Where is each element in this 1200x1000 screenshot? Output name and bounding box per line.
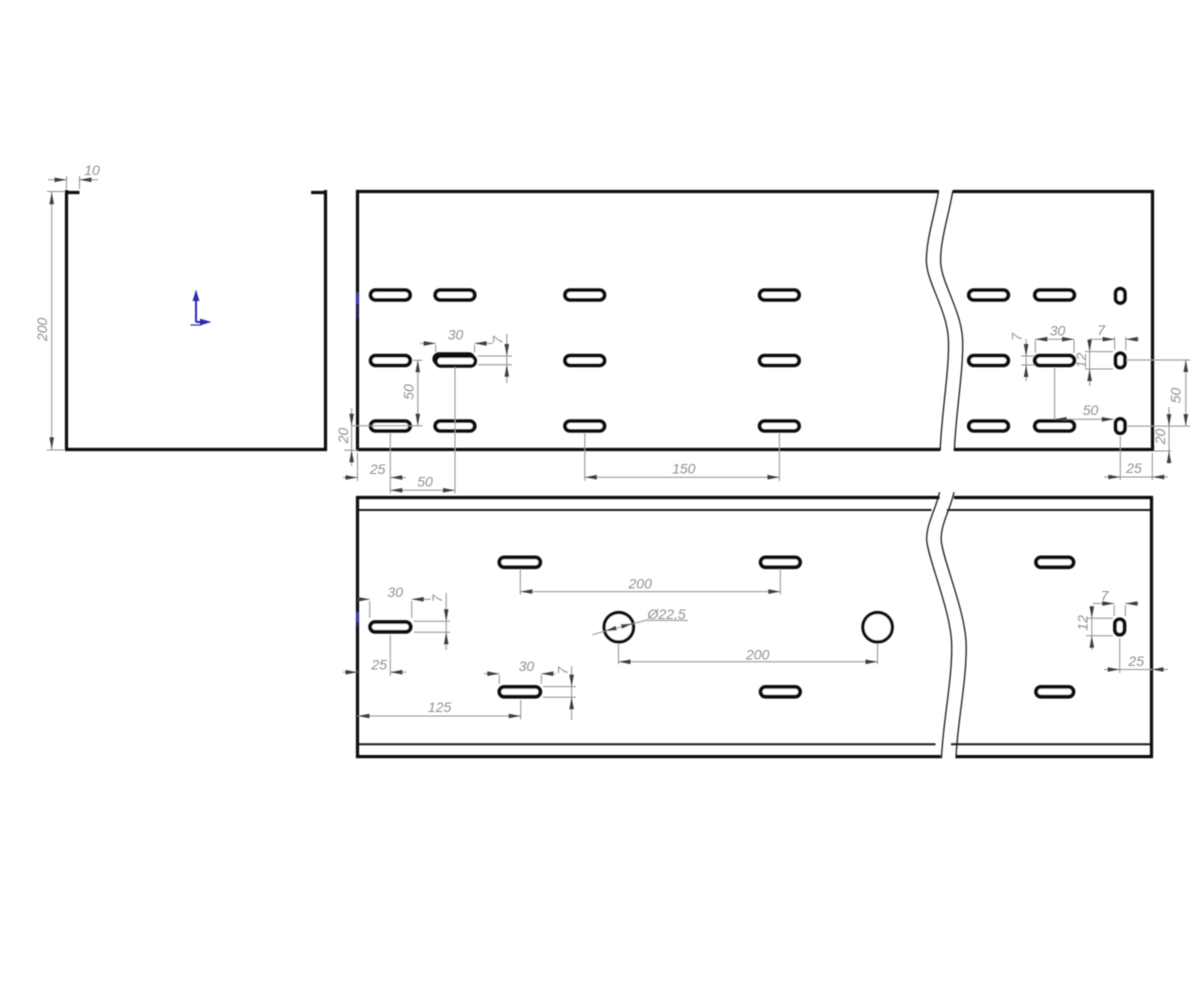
svg-text:25: 25 <box>1127 653 1144 669</box>
svg-text:20: 20 <box>1152 429 1168 446</box>
svg-text:50: 50 <box>401 384 417 400</box>
svg-text:200: 200 <box>745 646 770 662</box>
svg-text:50: 50 <box>1168 388 1184 404</box>
svg-text:30: 30 <box>1050 323 1066 339</box>
svg-text:12: 12 <box>1073 353 1089 369</box>
svg-text:7: 7 <box>554 666 570 675</box>
svg-text:200: 200 <box>34 318 50 343</box>
svg-text:200: 200 <box>628 576 653 592</box>
svg-text:12: 12 <box>1075 615 1091 631</box>
svg-text:7: 7 <box>489 335 505 344</box>
svg-text:7: 7 <box>1101 588 1110 604</box>
svg-text:25: 25 <box>1125 460 1142 476</box>
svg-text:10: 10 <box>84 162 100 178</box>
svg-text:20: 20 <box>335 428 351 445</box>
svg-text:30: 30 <box>387 584 403 600</box>
svg-text:25: 25 <box>370 657 387 673</box>
svg-text:30: 30 <box>519 658 535 674</box>
svg-text:7: 7 <box>1097 322 1106 338</box>
svg-text:7: 7 <box>1009 332 1025 341</box>
svg-text:150: 150 <box>672 461 696 477</box>
svg-text:50: 50 <box>417 474 433 490</box>
svg-text:7: 7 <box>429 593 445 602</box>
svg-text:125: 125 <box>428 699 452 715</box>
svg-text:30: 30 <box>448 327 464 343</box>
svg-text:25: 25 <box>369 461 386 477</box>
svg-text:Ø22,5: Ø22,5 <box>647 606 686 622</box>
svg-text:50: 50 <box>1083 402 1099 418</box>
